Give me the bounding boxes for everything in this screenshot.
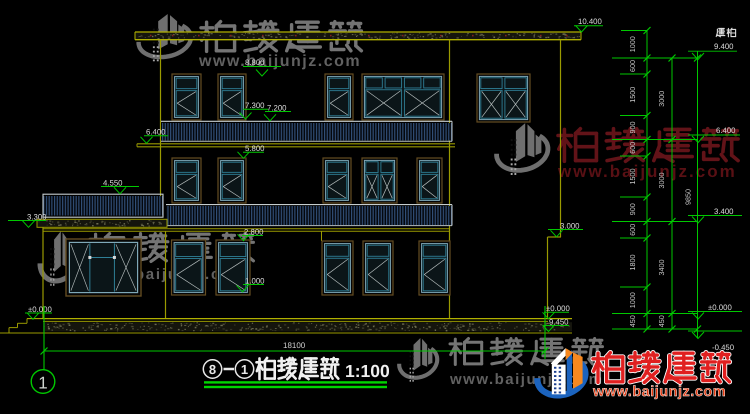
svg-text:6.400: 6.400: [146, 128, 166, 137]
svg-text:±0.000: ±0.000: [708, 303, 732, 312]
svg-text:www.baijunjz.com: www.baijunjz.com: [592, 384, 726, 400]
svg-text:600: 600: [628, 224, 637, 236]
svg-text:±0.000: ±0.000: [28, 305, 52, 314]
svg-text:5.800: 5.800: [245, 144, 265, 153]
svg-text:7.300: 7.300: [245, 101, 265, 110]
svg-text:10.400: 10.400: [578, 17, 603, 26]
svg-text:±0.000: ±0.000: [546, 304, 570, 313]
svg-text:www.baijunjz.com: www.baijunjz.com: [198, 53, 361, 70]
svg-text:6.400: 6.400: [716, 126, 736, 135]
svg-text:18100: 18100: [283, 341, 306, 350]
svg-text:8: 8: [209, 362, 216, 377]
svg-text:900: 900: [628, 122, 637, 134]
svg-text:450: 450: [628, 315, 637, 327]
svg-text:1.000: 1.000: [245, 276, 265, 285]
svg-text:1: 1: [241, 362, 248, 377]
svg-text:450: 450: [657, 315, 666, 327]
svg-text:600: 600: [628, 142, 637, 154]
svg-text:900: 900: [628, 203, 637, 215]
svg-text:8.800: 8.800: [245, 58, 265, 67]
svg-text:9.450: 9.450: [549, 317, 569, 326]
svg-text:1500: 1500: [628, 87, 637, 103]
svg-text:1: 1: [38, 374, 47, 393]
svg-text:3.300: 3.300: [27, 212, 47, 221]
svg-text:600: 600: [628, 60, 637, 72]
svg-text:4.550: 4.550: [103, 178, 123, 187]
svg-text:9850: 9850: [684, 189, 693, 205]
svg-text:3.000: 3.000: [560, 221, 580, 230]
svg-text:3.400: 3.400: [714, 207, 734, 216]
svg-text:9.400: 9.400: [714, 42, 734, 51]
svg-text:2.800: 2.800: [244, 227, 264, 236]
svg-text:1800: 1800: [628, 255, 637, 271]
svg-text:3000: 3000: [657, 91, 666, 107]
svg-text:1000: 1000: [628, 292, 637, 308]
svg-text:1500: 1500: [628, 169, 637, 185]
svg-text:3000: 3000: [657, 173, 666, 189]
svg-text:1000: 1000: [628, 36, 637, 52]
svg-text:1:100: 1:100: [345, 361, 390, 381]
svg-text:3400: 3400: [657, 260, 666, 276]
